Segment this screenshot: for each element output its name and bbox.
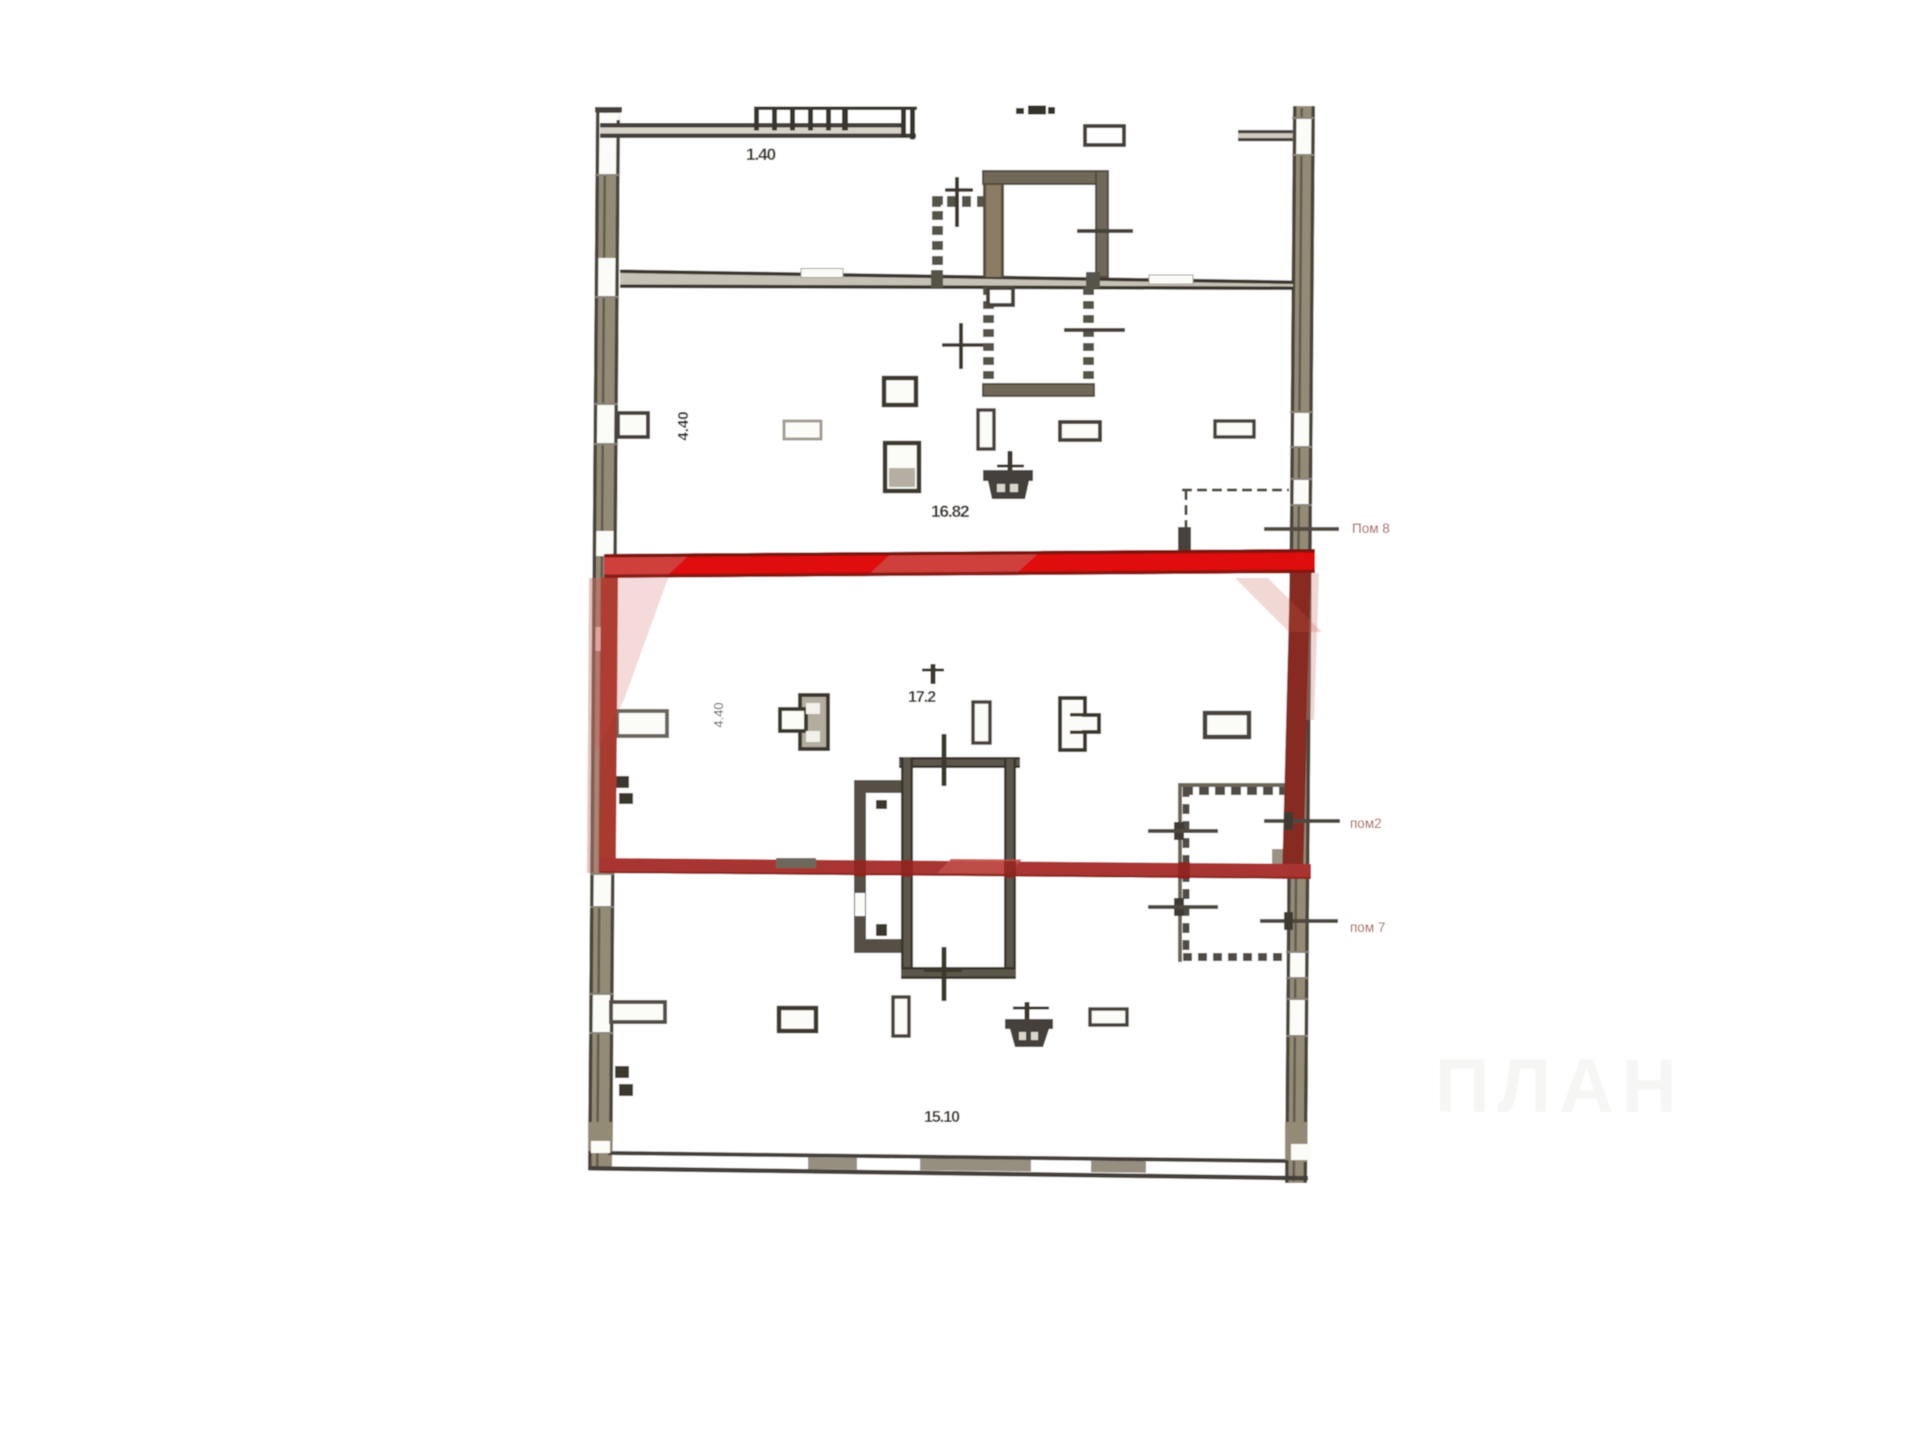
svg-text:пом 7: пом 7 bbox=[1350, 920, 1385, 935]
svg-text:пом2: пом2 bbox=[1350, 816, 1382, 831]
svg-text:17.2: 17.2 bbox=[908, 689, 936, 706]
svg-text:15.10: 15.10 bbox=[924, 1109, 960, 1126]
svg-text:4.40: 4.40 bbox=[675, 411, 692, 440]
svg-text:ПЛАН: ПЛАН bbox=[1435, 1044, 1685, 1129]
svg-text:Пом 8: Пом 8 bbox=[1352, 521, 1390, 536]
svg-text:16.82: 16.82 bbox=[931, 502, 969, 521]
svg-text:1.40: 1.40 bbox=[746, 145, 776, 164]
svg-text:4.40: 4.40 bbox=[711, 702, 726, 727]
